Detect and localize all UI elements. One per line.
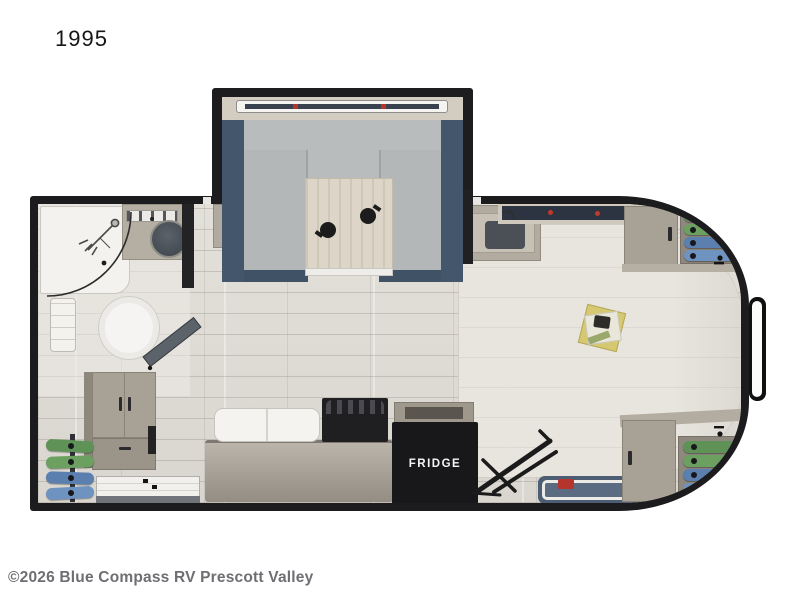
hanger-icon: [691, 486, 697, 492]
clothes-item: [684, 224, 740, 235]
window-glass: [752, 301, 762, 397]
hanger-icon: [68, 490, 74, 496]
clothes-item: [46, 439, 95, 453]
hanger-icon: [690, 253, 696, 259]
stove-grate: [326, 400, 384, 414]
wall-jamb: [473, 197, 481, 204]
clothes-item: [683, 455, 739, 467]
drawer-handle: [119, 447, 131, 450]
wardrobe-open-shelf: [680, 206, 741, 264]
wardrobe-door: [622, 420, 676, 502]
clothes-item: [46, 486, 95, 500]
hanger-icon: [691, 472, 697, 478]
fridge: FRIDGE: [392, 422, 478, 503]
entry-door-step: [96, 476, 200, 498]
wardrobe-front-bottom: [620, 412, 741, 503]
kitchen-sink-cover: [214, 408, 320, 442]
cabinet-door-seam: [124, 373, 125, 437]
wardrobe-door: [624, 206, 678, 266]
galley-sink-basin: [485, 221, 525, 249]
fridge-cabinet-top: [394, 402, 474, 424]
fridge-label: FRIDGE: [392, 458, 478, 470]
hanger-icon: [68, 459, 74, 465]
toilet: [98, 296, 160, 360]
hanger-icon: [691, 458, 697, 464]
clothes-item: [683, 441, 739, 453]
fridge-vent: [405, 407, 463, 419]
wardrobe-left-drawer: [92, 438, 156, 470]
clothes-item: [684, 211, 740, 222]
dealer-watermark: ©2026 Blue Compass RV Prescott Valley: [8, 569, 313, 587]
cooktop: [502, 206, 642, 220]
stove: [322, 398, 388, 442]
window-red-accent: [381, 104, 386, 109]
camera-icon: [593, 315, 611, 329]
wardrobe-left-cabinet: [92, 372, 156, 438]
wardrobe-front-top: [622, 204, 741, 270]
hanger-icon: [68, 475, 74, 481]
wardrobe-handle: [628, 451, 632, 465]
slideout-wall-left: [222, 120, 244, 282]
dinette-seat-front-left: [244, 270, 308, 282]
hanger-icon: [691, 444, 697, 450]
door-frame-post: [148, 426, 156, 454]
stove-knob-red: [548, 210, 553, 215]
stove-knob-red: [595, 211, 600, 216]
wardrobe-open-shelf: [678, 436, 741, 502]
clothes-item: [684, 237, 740, 248]
clothes-item: [684, 250, 740, 261]
clothes-item: [683, 469, 739, 481]
wardrobe-bottom-lip: [622, 264, 741, 272]
dinette-cushion-left: [244, 150, 308, 278]
bathroom-wall-stub: [182, 204, 194, 288]
clothes-item: [683, 483, 739, 495]
shower-pan: [40, 206, 130, 294]
clothes-item: [46, 455, 94, 469]
wall-jamb: [203, 197, 211, 204]
slideout-wall-right: [441, 120, 463, 282]
bed-decor-books: [578, 304, 630, 356]
window-red-accent: [293, 104, 298, 109]
model-number-label: 1995: [55, 26, 108, 52]
wardrobe-handle: [668, 227, 672, 241]
clothes-item: [46, 471, 94, 485]
kitchen-counter: [205, 440, 393, 502]
table-kettle-icon: [320, 222, 336, 238]
cabinet-handle: [128, 397, 131, 411]
window-blind-rod: [245, 104, 439, 109]
bathroom-towels: [50, 298, 76, 352]
window-front-cap: [749, 297, 766, 401]
slideout-window: [236, 100, 448, 113]
dinette-table: [305, 178, 393, 272]
table-kettle-icon: [360, 208, 376, 224]
hanger-icon: [690, 240, 696, 246]
hanger-icon: [68, 443, 74, 449]
hanger-icon: [690, 227, 696, 233]
pet-toy-red: [558, 479, 574, 489]
dinette-table-edge: [305, 268, 393, 276]
cabinet-handle: [119, 397, 122, 411]
hanger-icon: [690, 214, 696, 220]
entry-threshold: [96, 496, 200, 503]
